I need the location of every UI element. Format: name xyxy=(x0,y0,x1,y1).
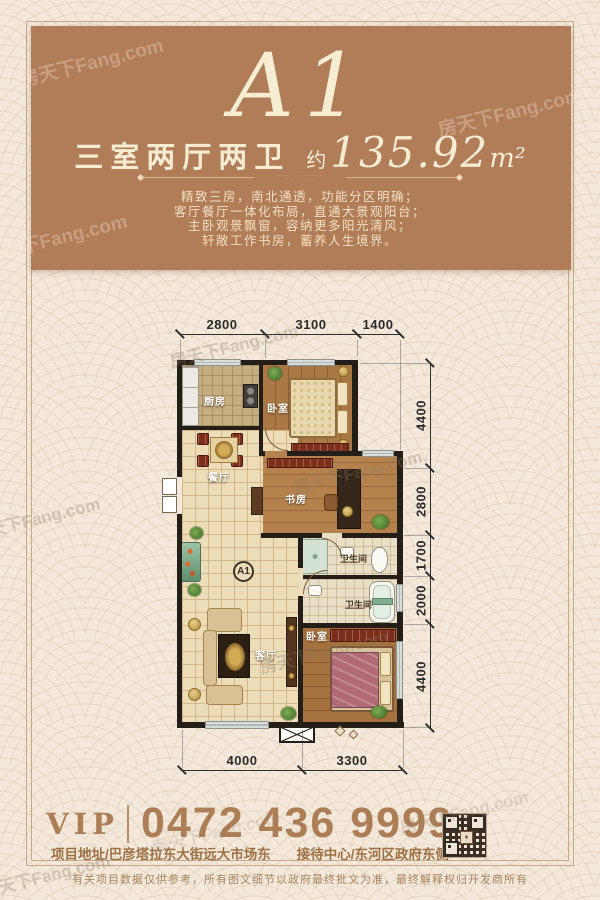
watermark: 房天下Fang.com xyxy=(291,442,424,498)
watermarks: 房天下Fang.com 房天下Fang.com 房天下Fang.com 房天下F… xyxy=(0,0,600,900)
watermark: 房天下Fang.com xyxy=(0,489,102,545)
watermark: 房天下Fang.com xyxy=(435,81,584,143)
watermark: 房天下Fang.com xyxy=(0,846,112,900)
watermark: 房天下Fang.com xyxy=(149,802,282,858)
watermark: 房天下Fang.com xyxy=(397,782,530,838)
watermark: 房天下Fang.com xyxy=(167,316,300,372)
watermark: 房天下Fang.com xyxy=(17,31,166,93)
watermark: 房天下Fang.com xyxy=(0,207,130,269)
watermark: 房天下Fang.com xyxy=(257,622,390,678)
poster-page: A1 三室两厅两卫 约 135.92 m² ··················… xyxy=(0,0,600,900)
